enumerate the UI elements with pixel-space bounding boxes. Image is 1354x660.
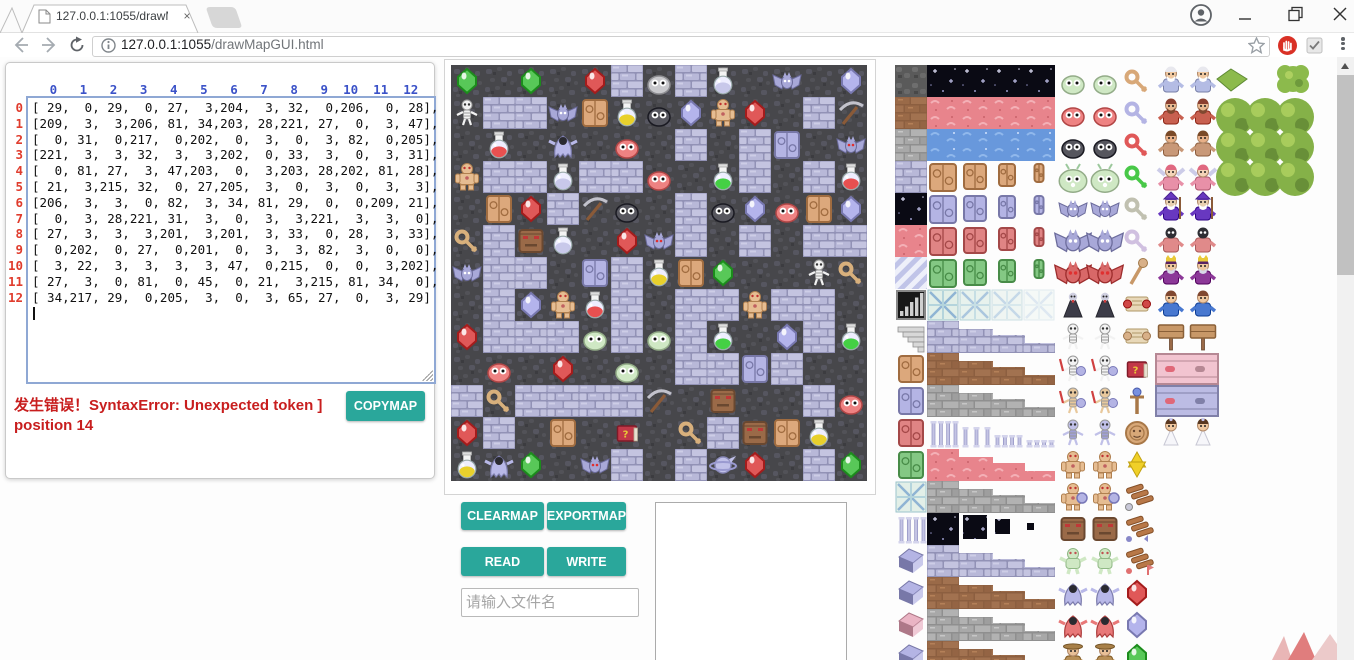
write-button[interactable]: WRITE	[547, 547, 626, 576]
bookmark-star-icon[interactable]	[1248, 37, 1265, 54]
back-icon[interactable]	[12, 36, 30, 54]
browser-window: 127.0.0.1:1055/drawMa ×	[0, 0, 1354, 660]
tab-close-icon[interactable]: ×	[180, 9, 194, 23]
url-host: 127.0.0.1:1055	[121, 37, 211, 52]
profile-icon[interactable]	[1190, 4, 1212, 26]
tab-bar: 127.0.0.1:1055/drawMa ×	[0, 0, 1354, 33]
watermark-logo	[1270, 632, 1337, 660]
matrix-textarea[interactable]: [ 29, 0, 29, 0, 27, 3,204, 3, 32, 0,206,…	[26, 96, 436, 384]
url-text[interactable]: 127.0.0.1:1055/drawMapGUI.html	[121, 37, 324, 52]
map-container: ?	[444, 59, 876, 495]
extension-checkbox-icon[interactable]	[1306, 37, 1323, 54]
filename-input[interactable]	[461, 588, 639, 617]
extension-hand-icon[interactable]	[1277, 35, 1298, 56]
url-path: /drawMapGUI.html	[211, 37, 324, 52]
page-scrollbar[interactable]	[1337, 57, 1354, 660]
output-box[interactable]	[655, 502, 847, 660]
close-window-button[interactable]	[1332, 6, 1348, 22]
error-message: 发生错误！SyntaxError: Unexpected token ] pos…	[14, 396, 346, 436]
textarea-resize-handle[interactable]	[422, 370, 433, 381]
scrollbar-up-arrow[interactable]	[1341, 63, 1349, 69]
tab-title[interactable]: 127.0.0.1:1055/drawMa	[56, 9, 168, 25]
restore-button[interactable]	[1288, 6, 1304, 22]
forward-icon[interactable]	[40, 36, 58, 54]
copymap-button[interactable]: COPYMAP	[346, 391, 425, 421]
page-content: 0 1 2 3 4 5 6 7 8 9 10 11 12 0 1 2 3 4 5…	[0, 57, 1354, 660]
tileset-image[interactable]: ?	[895, 65, 1315, 660]
matrix-text: [ 29, 0, 29, 0, 27, 3,204, 3, 32, 0,206,…	[32, 100, 438, 305]
matrix-panel: 0 1 2 3 4 5 6 7 8 9 10 11 12 0 1 2 3 4 5…	[5, 62, 435, 479]
minimize-button[interactable]	[1238, 10, 1252, 24]
matrix-row-numbers: 0 1 2 3 4 5 6 7 8 9 10 11 12	[8, 100, 23, 305]
clearmap-button[interactable]: CLEARMAP	[461, 502, 544, 530]
read-button[interactable]: READ	[461, 547, 544, 576]
text-caret	[33, 307, 35, 320]
svg-text:?: ?	[1133, 366, 1139, 377]
exportmap-button[interactable]: EXPORTMAP	[547, 502, 626, 530]
page-favicon-icon	[38, 9, 51, 24]
map-canvas[interactable]: ?	[451, 65, 867, 481]
reload-icon[interactable]	[68, 36, 86, 54]
svg-text:?: ?	[623, 430, 629, 441]
menu-dots-icon[interactable]	[1336, 36, 1350, 54]
scrollbar-thumb[interactable]	[1337, 75, 1354, 275]
info-icon[interactable]	[101, 38, 116, 53]
